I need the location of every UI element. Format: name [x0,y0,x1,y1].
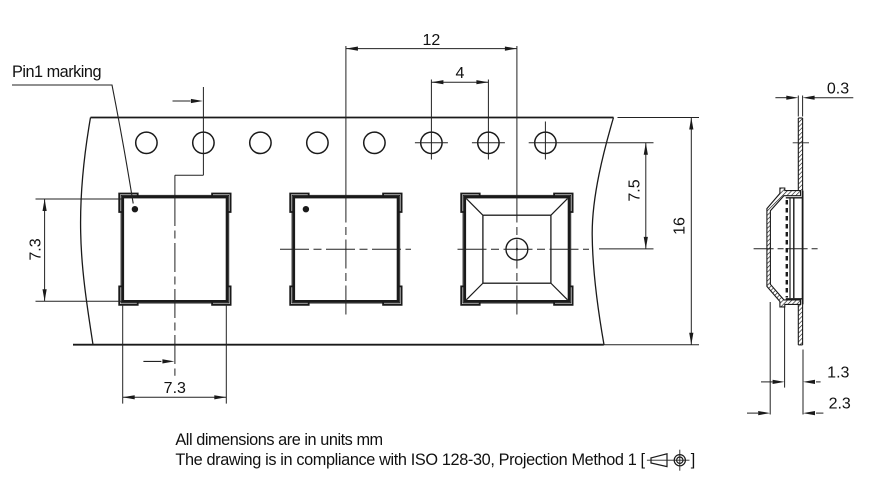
svg-text:1.3: 1.3 [827,364,849,381]
svg-text:7.3: 7.3 [28,238,45,260]
svg-text:7.5: 7.5 [627,179,644,201]
svg-text:All dimensions are in units mm: All dimensions are in units mm [175,431,382,449]
svg-text:7.3: 7.3 [164,380,186,397]
svg-text:2.3: 2.3 [829,396,851,413]
svg-text:Pin1 marking: Pin1 marking [12,63,101,81]
svg-text:]: ] [691,451,696,469]
svg-text:4: 4 [455,65,464,82]
svg-text:16: 16 [672,217,689,235]
svg-text:The drawing is in compliance w: The drawing is in compliance with ISO 12… [175,451,645,469]
svg-text:0.3: 0.3 [827,80,849,97]
svg-text:12: 12 [423,32,441,49]
